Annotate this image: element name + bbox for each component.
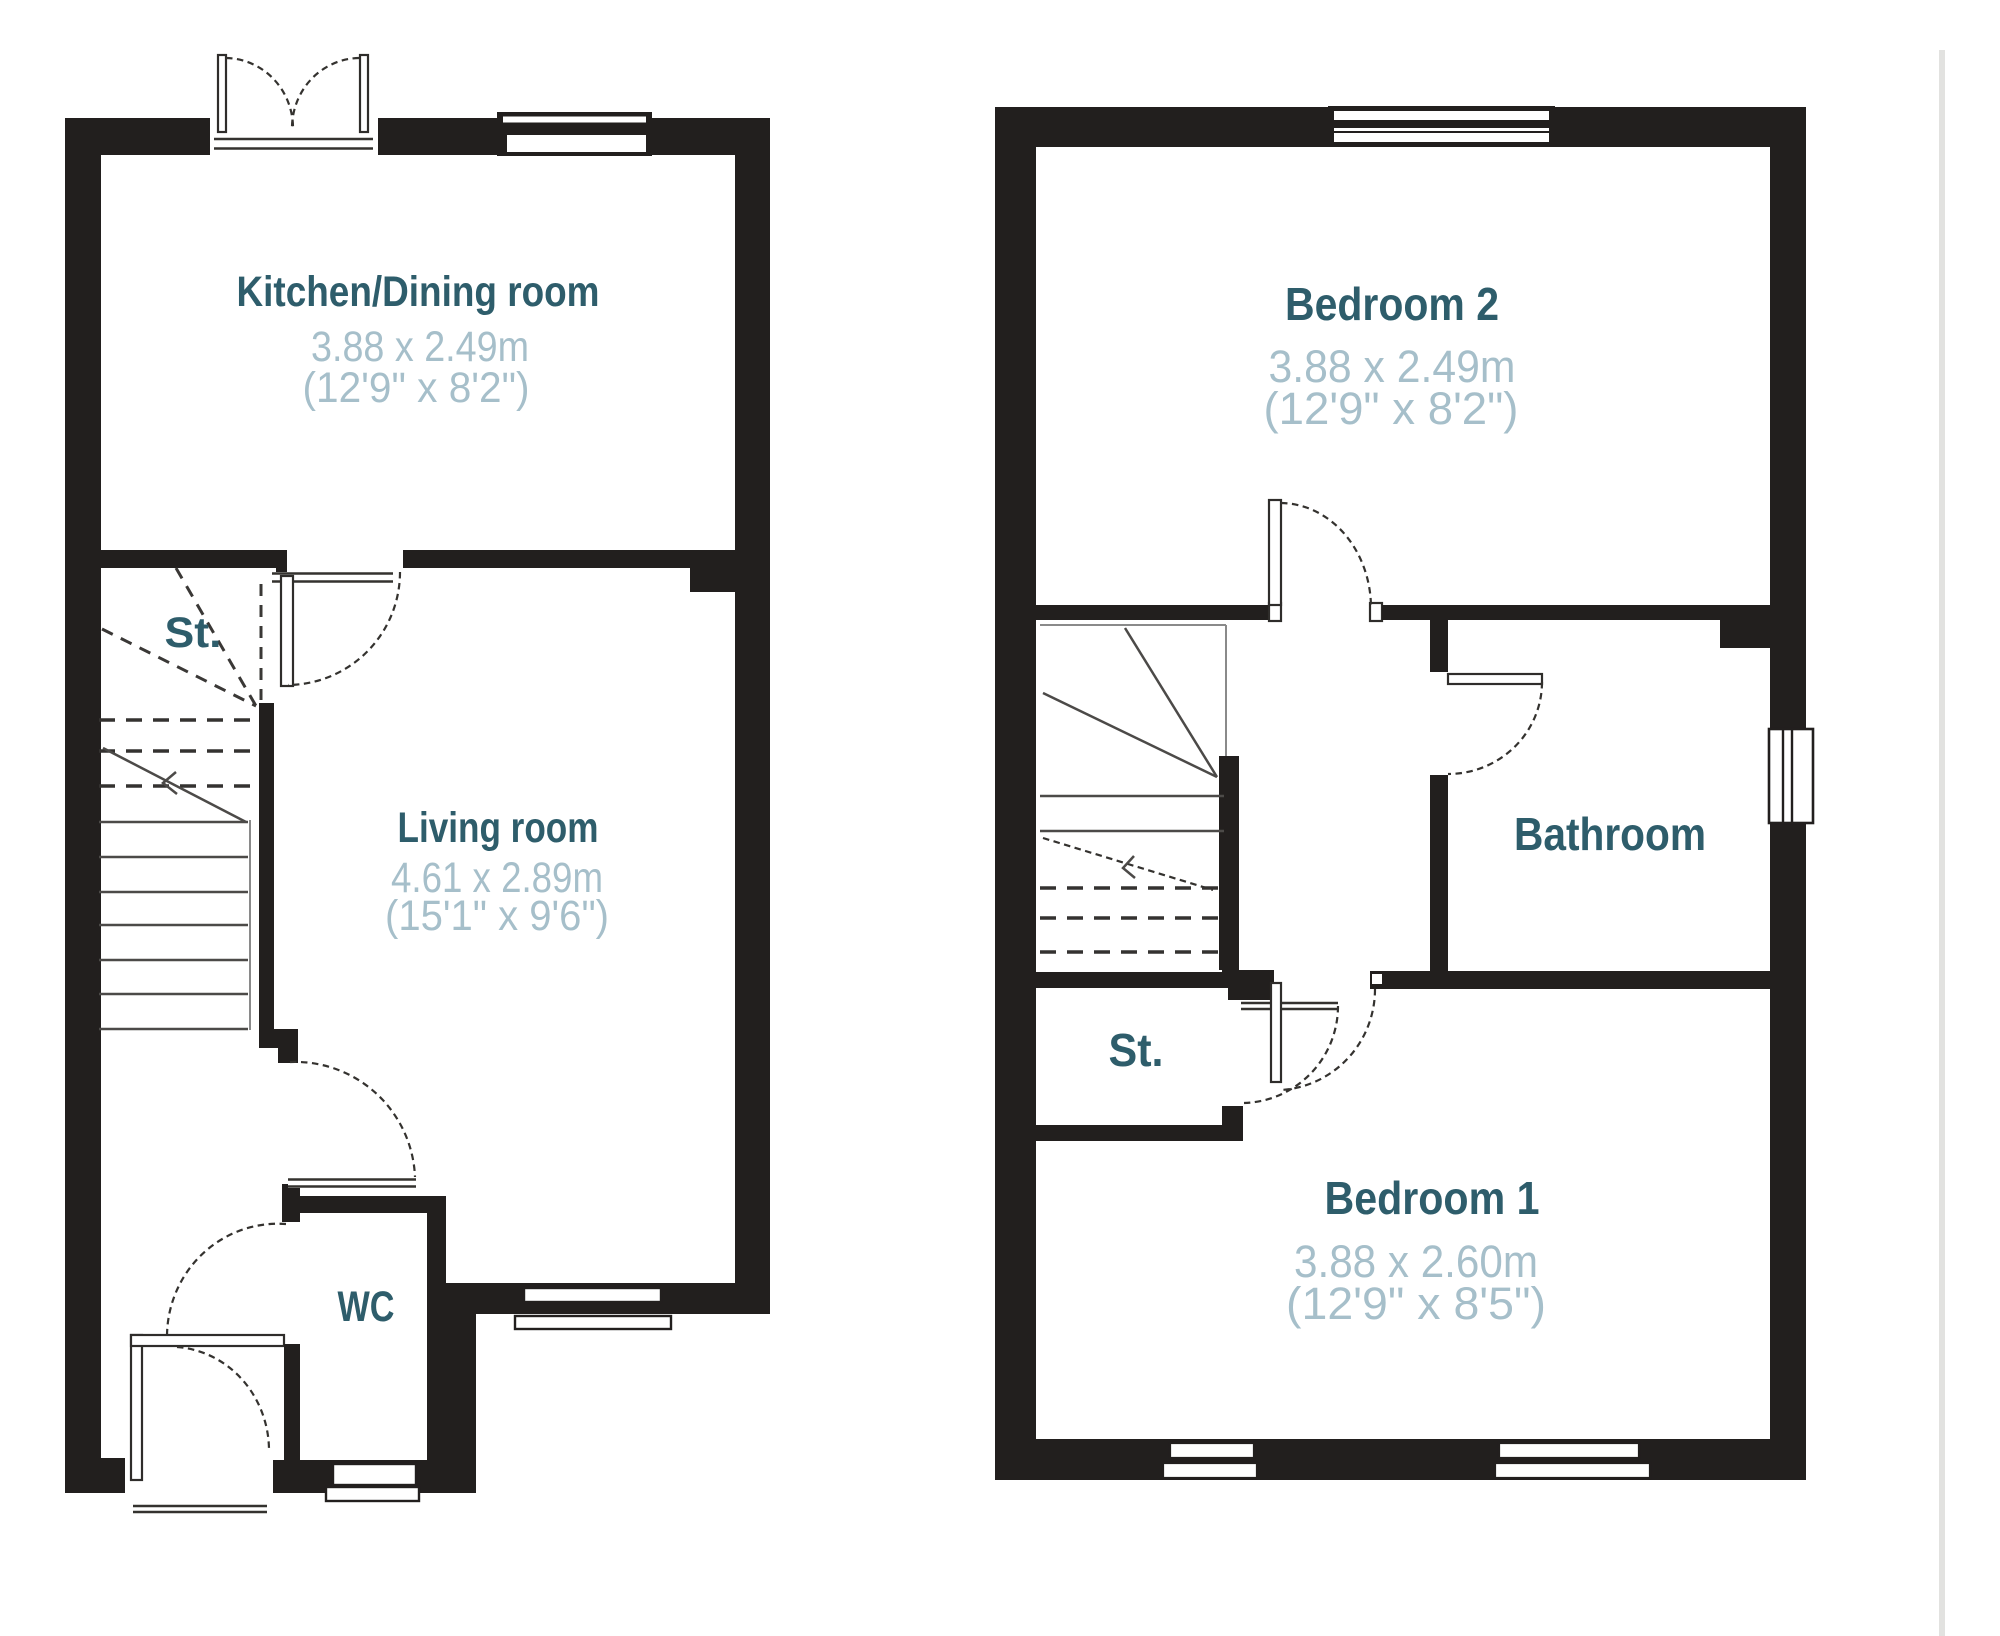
svg-text:(12'9" x 8'2"): (12'9" x 8'2") (303, 364, 530, 412)
svg-text:Bedroom 1: Bedroom 1 (1325, 1172, 1540, 1224)
svg-text:Living room: Living room (398, 804, 599, 852)
svg-text:Bathroom: Bathroom (1514, 808, 1706, 860)
svg-text:Bedroom 2: Bedroom 2 (1285, 278, 1499, 330)
svg-text:WC: WC (338, 1283, 395, 1331)
svg-text:(15'1" x 9'6"): (15'1" x 9'6") (385, 892, 609, 940)
svg-text:St.: St. (165, 609, 222, 657)
svg-text:St.: St. (1109, 1024, 1164, 1076)
svg-text:(12'9" x 8'5"): (12'9" x 8'5") (1286, 1278, 1546, 1329)
svg-text:Kitchen/Dining room: Kitchen/Dining room (237, 268, 600, 316)
svg-text:(12'9" x 8'2"): (12'9" x 8'2") (1264, 383, 1519, 434)
